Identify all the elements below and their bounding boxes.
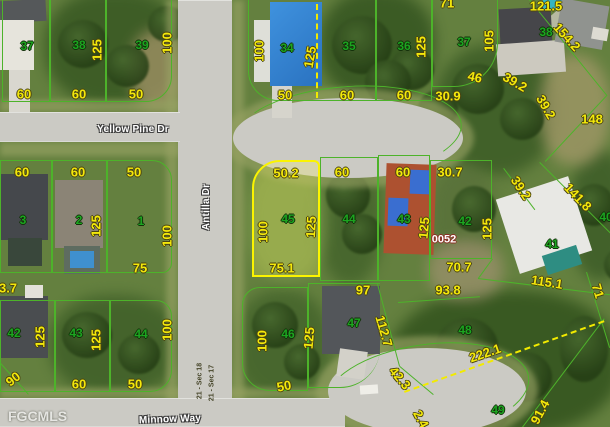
dimension-label: 60 bbox=[396, 166, 410, 179]
dimension-label: 39.2 bbox=[501, 70, 529, 94]
dimension-label: 100 bbox=[161, 225, 174, 247]
dimension-label: 3.7 bbox=[0, 282, 17, 295]
lot-number-label: 41 bbox=[545, 238, 558, 250]
street-name-label: Antilla Dr bbox=[202, 184, 212, 230]
dimension-label: 125 bbox=[90, 215, 103, 237]
dimension-label: 125 bbox=[90, 329, 103, 351]
dimension-label: 100 bbox=[257, 221, 270, 243]
dimension-label: 90 bbox=[3, 369, 22, 388]
dimension-label: 30.7 bbox=[437, 166, 462, 179]
dimension-label: 222.1 bbox=[467, 342, 502, 365]
lot-number-label: 44 bbox=[342, 213, 355, 225]
dimension-label: 60 bbox=[17, 88, 31, 101]
lot-number-label: 34 bbox=[280, 42, 293, 54]
lot-number-label: 42 bbox=[458, 215, 471, 227]
dimension-label: 70.7 bbox=[446, 261, 471, 274]
dimension-label: 125 bbox=[417, 217, 432, 240]
dimension-label: 2.4 bbox=[411, 408, 431, 427]
dimension-label: 125 bbox=[304, 216, 318, 238]
dimension-label: 141.8 bbox=[562, 181, 594, 213]
dimension-label: 91.4 bbox=[528, 398, 551, 426]
dimension-label: 125 bbox=[302, 327, 317, 350]
lot-number-label: 43 bbox=[397, 213, 410, 225]
labels-layer: 12510060605010012550606030.912510571121.… bbox=[0, 0, 610, 427]
dimension-label: 50 bbox=[276, 378, 293, 393]
lot-number-label: 45 bbox=[281, 213, 294, 225]
lot-number-label: 3 bbox=[20, 214, 27, 226]
dimension-label: 60 bbox=[340, 89, 354, 102]
dimension-label: 60 bbox=[72, 88, 86, 101]
lot-number-label: 37 bbox=[457, 36, 470, 48]
lot-number-label: 1 bbox=[138, 215, 145, 227]
watermark: FGCMLS bbox=[8, 408, 67, 424]
dimension-label: 125 bbox=[34, 326, 47, 348]
dimension-label: 100 bbox=[253, 40, 266, 62]
dimension-label: 71 bbox=[440, 0, 454, 10]
dimension-label: 60 bbox=[71, 166, 85, 179]
dimension-label: 50 bbox=[127, 166, 141, 179]
section-label: 21 - Sec 18 bbox=[197, 363, 204, 399]
section-label: 21 - Sec 17 bbox=[209, 365, 216, 401]
dimension-label: 154.2 bbox=[551, 21, 582, 54]
dimension-label: 39.2 bbox=[509, 174, 534, 202]
lot-number-label: 47 bbox=[347, 317, 360, 329]
lot-number-label: 43 bbox=[69, 327, 82, 339]
lot-number-label: 38 bbox=[539, 26, 552, 38]
lot-number-label: 40 bbox=[599, 211, 610, 223]
dimension-label: 125 bbox=[481, 218, 494, 240]
street-name-label: Yellow Pine Dr bbox=[97, 125, 169, 135]
lot-number-label: 49 bbox=[491, 404, 504, 416]
lot-number-label: 44 bbox=[134, 328, 147, 340]
dimension-label: 42.3 bbox=[387, 364, 413, 392]
dimension-label: 50 bbox=[128, 378, 142, 391]
dimension-label: 60 bbox=[15, 166, 29, 179]
dimension-label: 148 bbox=[581, 113, 603, 126]
dimension-label: 60 bbox=[72, 378, 86, 391]
dimension-label: 100 bbox=[161, 319, 174, 341]
dimension-label: 75 bbox=[133, 262, 147, 275]
dimension-label: 97 bbox=[356, 284, 370, 297]
lot-number-label: 42 bbox=[7, 327, 20, 339]
dimension-label: 71 bbox=[590, 282, 607, 300]
dimension-label: 50 bbox=[129, 88, 143, 101]
dimension-label: 115.1 bbox=[530, 273, 563, 291]
lot-number-label: 48 bbox=[458, 324, 471, 336]
dimension-label: 125 bbox=[91, 39, 104, 61]
dimension-label: 60 bbox=[397, 89, 411, 102]
dimension-label: 105 bbox=[483, 30, 496, 52]
dimension-label: 75.1 bbox=[269, 262, 294, 275]
dimension-label: 125 bbox=[302, 45, 319, 69]
dimension-label: 50.2 bbox=[273, 167, 298, 180]
lot-number-label: 38 bbox=[72, 39, 85, 51]
lot-number-label: 36 bbox=[397, 40, 410, 52]
lot-number-label: 39 bbox=[135, 39, 148, 51]
address-marker-label: 0052 bbox=[432, 235, 456, 246]
lot-number-label: 2 bbox=[76, 214, 83, 226]
dimension-label: 30.9 bbox=[435, 90, 460, 103]
dimension-label: 100 bbox=[161, 32, 174, 54]
dimension-label: 50 bbox=[278, 89, 292, 102]
lot-number-label: 37 bbox=[20, 40, 33, 52]
dimension-label: 39.2 bbox=[534, 93, 558, 121]
dimension-label: 100 bbox=[256, 330, 269, 352]
mls-aerial-parcel-map: 12510060605010012550606030.912510571121.… bbox=[0, 0, 610, 427]
lot-number-label: 46 bbox=[281, 328, 294, 340]
dimension-label: 112.7 bbox=[373, 314, 394, 348]
dimension-label: 46 bbox=[467, 69, 484, 85]
dimension-label: 125 bbox=[415, 36, 428, 58]
lot-number-label: 35 bbox=[342, 40, 355, 52]
street-name-label: Minnow Way bbox=[139, 414, 201, 426]
dimension-label: 121.5 bbox=[530, 0, 563, 13]
dimension-label: 60 bbox=[335, 166, 349, 179]
dimension-label: 93.8 bbox=[435, 284, 460, 297]
